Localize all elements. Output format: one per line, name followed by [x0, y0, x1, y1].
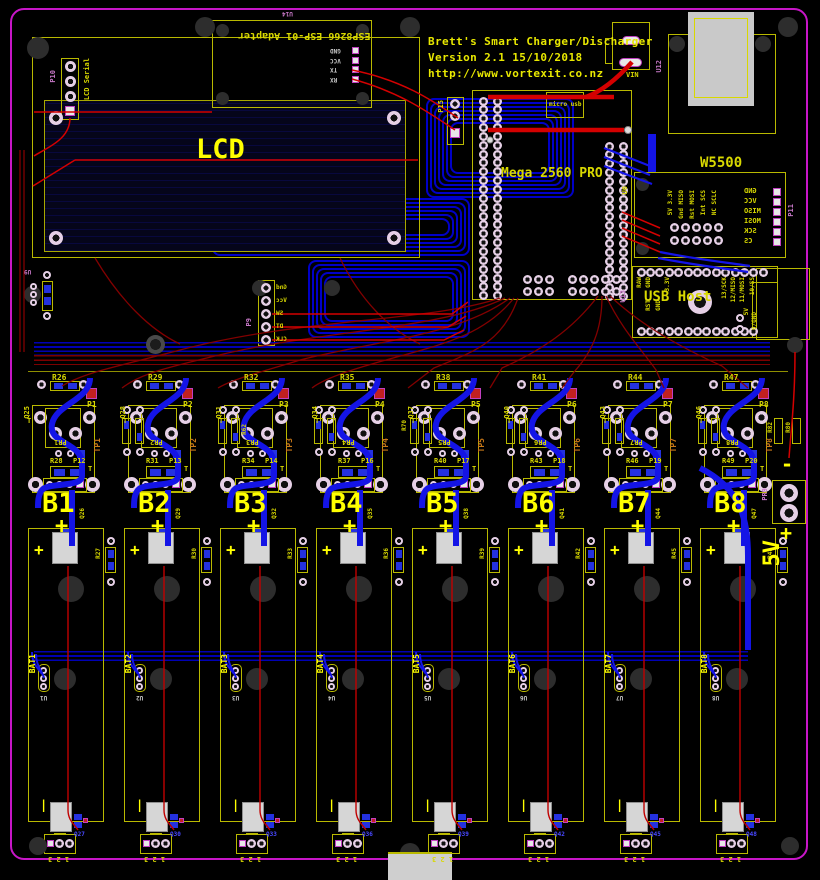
testpoint-ref: TP1	[94, 438, 102, 452]
mount-hole	[346, 576, 372, 602]
pad	[491, 537, 499, 545]
pad	[65, 106, 75, 116]
pad	[655, 327, 664, 336]
silk-t-mark: T	[123, 418, 127, 425]
mega-name: Mega 2560 PRO	[501, 167, 603, 180]
channel-fet2-ref: Q38	[464, 508, 470, 519]
pad	[605, 230, 614, 239]
pad	[28, 477, 43, 492]
pad	[107, 537, 115, 545]
pad	[493, 220, 502, 229]
pad	[749, 268, 758, 277]
connector-pin-numbers: 1 2 3	[720, 855, 741, 862]
pad	[587, 578, 595, 586]
pad	[728, 481, 735, 488]
mount-hole	[324, 280, 340, 296]
sense-pad-ref: P7	[663, 401, 673, 409]
pad	[641, 839, 650, 848]
battery-slot-BAT3: + R33 BAT3 U3 | Q33 1 2 3	[220, 528, 316, 862]
divider-resistor-ref: R30	[192, 548, 198, 559]
silk-t-mark: T	[664, 466, 668, 473]
channel-fet2-ref: Q44	[656, 508, 662, 519]
pad	[683, 537, 691, 545]
pad	[693, 268, 702, 277]
usb-host-pin-label: 3.3V	[665, 277, 671, 291]
w5500-side-pad	[773, 218, 781, 226]
pad	[261, 309, 271, 319]
pad	[123, 448, 131, 456]
pad	[619, 195, 628, 204]
channel-fet2-ref: Q47	[752, 508, 758, 519]
battery-minus-mark: |	[40, 798, 47, 812]
pad	[328, 683, 335, 690]
title-line-2: Version 2.1 15/10/2018	[428, 50, 653, 66]
silk-t-mark: T	[376, 466, 380, 473]
pad	[328, 675, 335, 682]
pad	[619, 142, 628, 151]
battery-plus-mark: +	[130, 540, 140, 559]
pad	[650, 822, 658, 828]
pad	[136, 683, 143, 690]
channel-conn-ref: P12	[73, 458, 86, 465]
pad	[266, 822, 274, 828]
pad	[124, 477, 139, 492]
pad	[479, 238, 488, 247]
battery-slot-BAT4: + R36 BAT4 U4 | Q36 1 2 3	[316, 528, 412, 862]
pad	[354, 481, 361, 488]
micro-usb-label: micro usb	[549, 102, 582, 108]
pad	[493, 132, 502, 141]
w5500-column-label: Int SCS	[701, 190, 707, 215]
pad	[467, 818, 472, 823]
sensor-ref: U5	[424, 694, 431, 700]
pad	[299, 578, 307, 586]
sensor-ref: U4	[328, 694, 335, 700]
pad	[619, 230, 628, 239]
pad	[219, 448, 227, 456]
divider-resistor-ref: R39	[480, 548, 486, 559]
channel-conn-ref: P18	[553, 458, 566, 465]
pad	[424, 683, 431, 690]
mount-hole	[29, 837, 47, 855]
title-line-1: Brett's Smart Charger/Discharger	[428, 34, 653, 50]
pad	[439, 450, 446, 457]
pad	[479, 105, 488, 114]
pad	[364, 480, 372, 488]
pad	[632, 481, 639, 488]
pad	[605, 195, 614, 204]
pad	[493, 212, 502, 221]
w5500-side-label: SCK	[744, 228, 770, 235]
resistor	[146, 466, 180, 478]
usb-host-pin-label: 10/SS	[750, 277, 756, 295]
pad	[74, 814, 82, 820]
pad	[259, 450, 266, 457]
channel-mid-resistor-ref: R28	[50, 458, 63, 465]
pad	[479, 123, 488, 132]
pad	[527, 840, 534, 847]
sense-pad-ref: P8	[759, 401, 769, 409]
sensor-ref: U6	[520, 694, 527, 700]
pad	[181, 477, 196, 492]
connector-pin-numbers: 1 2 3	[432, 855, 453, 862]
pad	[334, 481, 341, 488]
bus-band-blue	[34, 342, 770, 355]
testpoint-ref: TP6	[574, 438, 582, 452]
title-line-3: http://www.vortexit.co.nz	[428, 66, 653, 82]
satellite-resistor-ref: R62	[242, 424, 248, 435]
pad	[266, 814, 274, 820]
pad	[316, 477, 331, 492]
w5500-side-label: VCC	[744, 198, 770, 205]
pad	[619, 248, 628, 257]
pad	[479, 203, 488, 212]
battery-minus-mark: |	[712, 798, 719, 812]
pad	[619, 239, 628, 248]
pad	[55, 450, 62, 457]
w5500-side-label: GND	[744, 188, 770, 195]
divider-resistor	[105, 547, 116, 573]
mount-hole	[669, 36, 685, 52]
divider-resistor-ref: R36	[384, 548, 390, 559]
usb-host-aux-label: 5V	[744, 308, 750, 315]
pad	[604, 477, 619, 492]
pad	[719, 840, 726, 847]
pad	[746, 822, 754, 828]
pad	[692, 223, 701, 232]
pad	[619, 221, 628, 230]
pad	[616, 667, 623, 674]
channel-plus-label: +	[439, 514, 452, 539]
pad	[56, 481, 63, 488]
channel-mid-resistor-ref: R34	[242, 458, 255, 465]
pad	[605, 239, 614, 248]
pad	[623, 840, 630, 847]
pad	[493, 194, 502, 203]
pad	[395, 578, 403, 586]
testpoint-ref: TP2	[190, 438, 198, 452]
pad	[325, 380, 334, 389]
pad	[612, 275, 621, 284]
usb-b-shield-outline	[694, 18, 748, 98]
pad	[517, 380, 526, 389]
channel-mid-resistor-ref: R46	[626, 458, 639, 465]
w5500-side-pad	[773, 228, 781, 236]
satellite-resistor	[774, 418, 783, 444]
pad	[613, 380, 622, 389]
channel-plus-label: +	[727, 514, 740, 539]
resistor	[338, 381, 368, 391]
pad	[712, 268, 721, 277]
pad	[247, 450, 254, 457]
mount-hole	[781, 837, 799, 855]
pad	[622, 481, 629, 488]
mount-hole	[538, 576, 564, 602]
esp-pin-label: GND	[330, 47, 341, 53]
satellite-resistor	[711, 418, 720, 444]
testpoint-ref: TP4	[382, 438, 390, 452]
pad	[458, 814, 466, 820]
pad	[30, 291, 37, 298]
pad	[601, 275, 610, 284]
pad	[469, 477, 484, 492]
battery-slot-label: BAT4	[316, 654, 325, 673]
pad	[479, 150, 488, 159]
board-title: Brett's Smart Charger/Discharger Version…	[428, 34, 653, 82]
pad	[479, 185, 488, 194]
p11-ref: P11	[788, 204, 795, 217]
pad	[371, 411, 384, 424]
pad	[737, 839, 746, 848]
mount-hole	[730, 576, 756, 602]
pad	[44, 297, 51, 305]
pad	[605, 168, 614, 177]
battery-slot-label: BAT8	[700, 654, 709, 673]
pad	[49, 111, 63, 125]
pad	[453, 427, 466, 440]
esp-pin-label: RX	[330, 76, 337, 82]
relay-ref: PR1	[54, 438, 67, 445]
pad	[170, 814, 178, 820]
pad	[450, 128, 460, 138]
pad	[605, 177, 614, 186]
battery-minus-mark: |	[232, 798, 239, 812]
pad	[568, 275, 577, 284]
pad	[424, 406, 432, 414]
divider-resistor	[297, 547, 308, 573]
resistor	[242, 466, 276, 478]
pad	[65, 76, 76, 87]
pad	[49, 231, 63, 245]
divider-resistor-ref: R33	[288, 548, 294, 559]
pad	[83, 411, 96, 424]
pad	[479, 141, 488, 150]
divider-resistor	[585, 547, 596, 573]
pad	[479, 256, 488, 265]
pad	[605, 248, 614, 257]
pad	[430, 481, 437, 488]
pad	[712, 683, 719, 690]
pad	[232, 448, 240, 456]
channel-plus-label: +	[55, 514, 68, 539]
encoder-pin-label: CLK	[276, 337, 287, 343]
battery-plus-mark: +	[706, 540, 716, 559]
battery-slot-label: BAT2	[124, 654, 133, 673]
battery-slot-label: BAT1	[28, 654, 37, 673]
pad	[549, 427, 562, 440]
resistor	[530, 466, 564, 478]
pad	[712, 448, 720, 456]
pad	[493, 97, 502, 106]
pad	[421, 380, 430, 389]
pad	[605, 265, 614, 274]
pad	[343, 450, 350, 457]
sense-pad-ref: P6	[567, 401, 577, 409]
pad	[172, 480, 180, 488]
pad	[703, 223, 712, 232]
pad	[328, 667, 335, 674]
mount-hole	[778, 17, 798, 37]
sense-pad-ref: P5	[471, 401, 481, 409]
pad	[721, 268, 730, 277]
u9-ref: U9	[24, 268, 31, 274]
encoder-pin-label: DT	[276, 324, 283, 330]
pad	[619, 265, 628, 274]
pad	[493, 282, 502, 291]
pad	[712, 675, 719, 682]
resistor	[434, 381, 464, 391]
pad	[779, 578, 787, 586]
bus-band-red	[34, 355, 770, 366]
silk-t-mark: T	[184, 466, 188, 473]
battery-fet-ref: Q48	[746, 832, 757, 838]
mount-hole	[400, 17, 420, 37]
pad	[43, 271, 51, 279]
lcd-label: LCD	[196, 134, 245, 165]
pad	[646, 268, 655, 277]
pad	[142, 481, 149, 488]
resistor	[722, 381, 752, 391]
p15-ref: P15	[438, 100, 445, 113]
pad	[605, 159, 614, 168]
channel-fet2-ref: Q32	[272, 508, 278, 519]
pad	[479, 265, 488, 274]
pad	[65, 839, 74, 848]
encoder-pin-label: SW	[276, 311, 283, 317]
pad	[85, 477, 100, 492]
pad	[493, 150, 502, 159]
pad	[387, 111, 401, 125]
pad	[232, 667, 239, 674]
power-terminal-ref: PR9	[762, 488, 769, 501]
pad	[759, 268, 768, 277]
channel-conn-ref: P13	[169, 458, 182, 465]
pad	[568, 287, 577, 296]
relay-ref: PR2	[150, 438, 163, 445]
pad	[47, 840, 54, 847]
pad	[449, 839, 458, 848]
pad	[590, 287, 599, 296]
pad	[450, 481, 457, 488]
pad	[523, 287, 532, 296]
pad	[740, 268, 749, 277]
sense-pad	[470, 388, 481, 399]
battery-plus-mark: +	[610, 540, 620, 559]
pad	[493, 229, 502, 238]
connector-pin-numbers: 1 2 3	[528, 855, 549, 862]
pad	[605, 257, 614, 266]
connector-pin-numbers: 1 2 3	[240, 855, 261, 862]
pad	[655, 268, 664, 277]
resistor	[626, 466, 660, 478]
sensor-ref: U3	[232, 694, 239, 700]
pad	[479, 158, 488, 167]
divider-resistor	[201, 547, 212, 573]
pad	[674, 268, 683, 277]
pad	[493, 265, 502, 274]
channel-conn-ref: P17	[457, 458, 470, 465]
w5500-side-label: CS	[744, 238, 770, 245]
pad	[508, 477, 523, 492]
channel-plus-label: +	[247, 514, 260, 539]
pad	[163, 450, 170, 457]
encoder-pin-label: Vcc	[276, 298, 287, 304]
channel-fet2-ref: Q41	[560, 508, 566, 519]
relay-ref: PR3	[246, 438, 259, 445]
channel-fet2-ref: Q26	[80, 508, 86, 519]
divider-resistor	[393, 547, 404, 573]
battery-neg-pad	[338, 802, 360, 832]
channel-conn-ref: P20	[745, 458, 758, 465]
testpoint-ref: TP5	[478, 438, 486, 452]
pad	[373, 477, 388, 492]
w5500-side-pad	[773, 198, 781, 206]
w5500-side-label: MOSI	[744, 218, 770, 225]
pad	[520, 675, 527, 682]
pad	[736, 325, 744, 333]
pad	[755, 818, 760, 823]
resistor	[242, 381, 272, 391]
pad	[661, 477, 676, 492]
sense-pad-ref: P2	[183, 401, 193, 409]
mount-hole	[755, 36, 771, 52]
mount-hole	[630, 668, 652, 690]
channel-top-resistor-ref: R47	[724, 374, 738, 382]
pad	[450, 111, 460, 121]
pad	[642, 481, 649, 488]
usb-host-pin-label: GND	[656, 300, 662, 311]
pad	[450, 99, 460, 109]
power-neg-label: -	[781, 452, 793, 476]
pad	[371, 818, 376, 823]
resistor	[722, 466, 756, 478]
pad	[479, 114, 488, 123]
silk-t-mark: T	[507, 418, 511, 425]
pad	[702, 327, 711, 336]
channel-top-resistor-ref: R38	[436, 374, 450, 382]
w5500-column-label: NC SCLC	[712, 190, 718, 215]
connector-pin-numbers: 1 2 3	[336, 855, 357, 862]
pad	[343, 839, 352, 848]
battery-plus-mark: +	[418, 540, 428, 559]
pad	[616, 448, 624, 456]
battery-plus-mark: +	[514, 540, 524, 559]
pad	[220, 477, 235, 492]
pad	[616, 406, 624, 414]
channel-mid-resistor-ref: R40	[434, 458, 447, 465]
pad	[479, 194, 488, 203]
pad	[40, 675, 47, 682]
pad	[258, 481, 265, 488]
pad	[136, 675, 143, 682]
pad	[203, 537, 211, 545]
pad	[277, 477, 292, 492]
channel-top-resistor-ref: R29	[148, 374, 162, 382]
pad	[261, 296, 271, 306]
pad	[738, 481, 745, 488]
resistor	[434, 466, 468, 478]
pad	[731, 268, 740, 277]
pad	[619, 177, 628, 186]
battery-minus-mark: |	[424, 798, 431, 812]
testpoint-ref: TP3	[286, 438, 294, 452]
mount-hole	[146, 335, 165, 354]
pad	[712, 406, 720, 414]
satellite-resistor	[231, 418, 240, 444]
pad	[692, 236, 701, 245]
mount-hole	[726, 668, 748, 690]
channel-plus-label: +	[151, 514, 164, 539]
